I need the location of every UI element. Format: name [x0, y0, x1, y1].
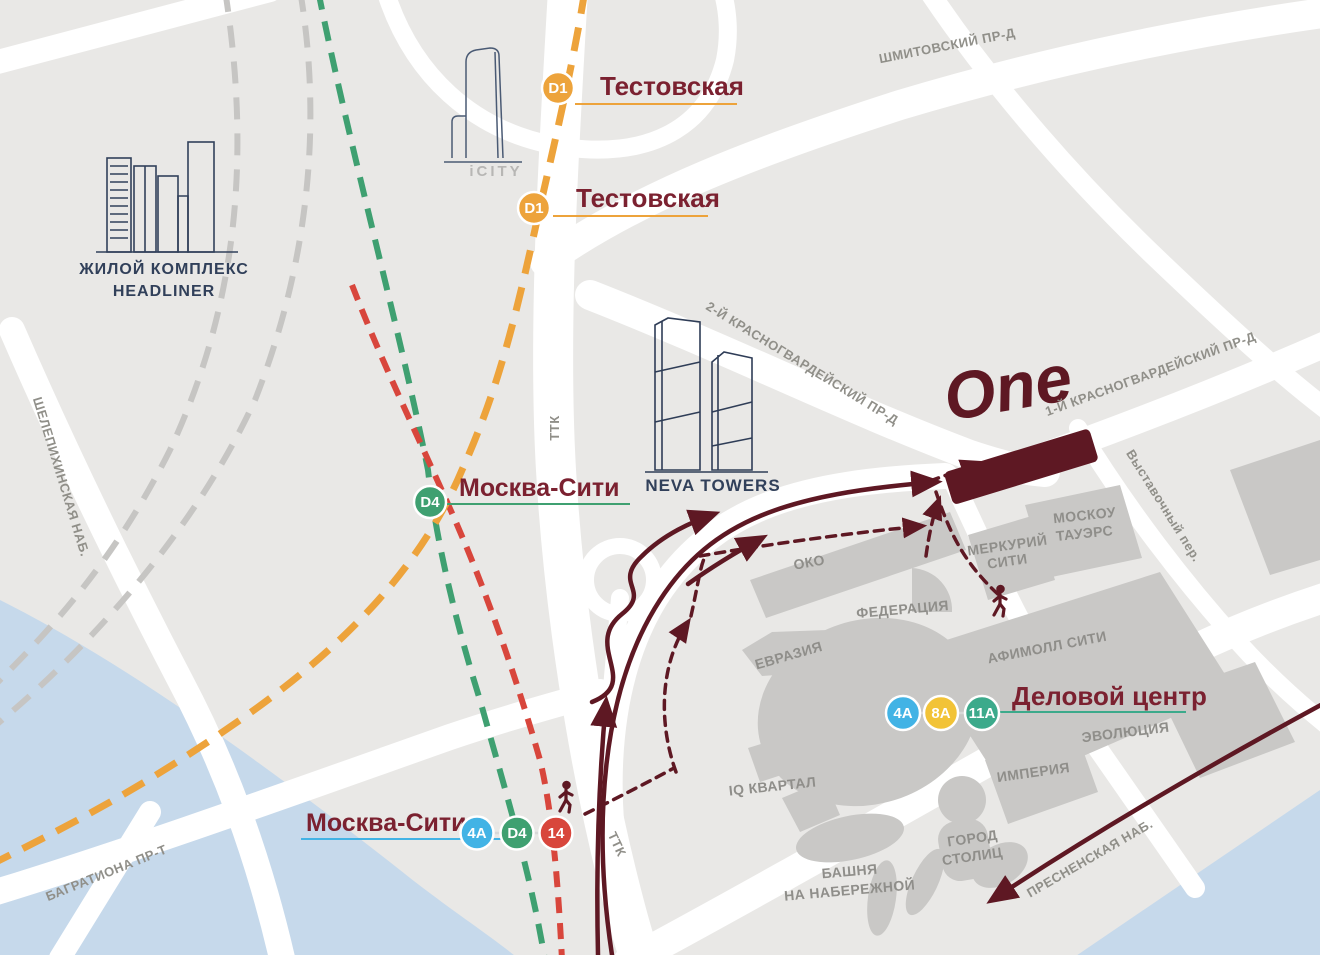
- landmark-label-neva: NEVA TOWERS: [645, 476, 780, 495]
- station-badge-label: 4A: [893, 705, 912, 722]
- station-badge-label: 14: [548, 825, 565, 842]
- landmark-label-headliner-1: ЖИЛОЙ КОМПЛЕКС: [78, 259, 249, 278]
- station-label: Деловой центр: [1012, 681, 1207, 711]
- station-badge-label: D1: [524, 200, 543, 217]
- station-label: Москва-Сити: [306, 809, 467, 837]
- station-badge-label: D1: [548, 80, 567, 97]
- block-gorod-1: [938, 776, 986, 824]
- station-label: Тестовская: [576, 183, 720, 213]
- street-label-ttk-north: ТТК: [547, 415, 562, 440]
- landmark-label-icity: iCITY: [469, 163, 522, 180]
- landmark-label-headliner-2: HEADLINER: [113, 283, 215, 300]
- station-badge-label: 8A: [931, 705, 950, 722]
- station-badge-label: D4: [420, 494, 440, 511]
- map-canvas: One ШМИТОВСКИЙ: [0, 0, 1320, 955]
- station-badge-label: D4: [507, 825, 527, 842]
- station-badge-label: 4A: [467, 825, 486, 842]
- station-label: Москва-Сити: [459, 474, 620, 502]
- city-map: One ШМИТОВСКИЙ: [0, 0, 1320, 955]
- station-label: Тестовская: [600, 71, 744, 101]
- station-badge-label: 11A: [969, 705, 996, 722]
